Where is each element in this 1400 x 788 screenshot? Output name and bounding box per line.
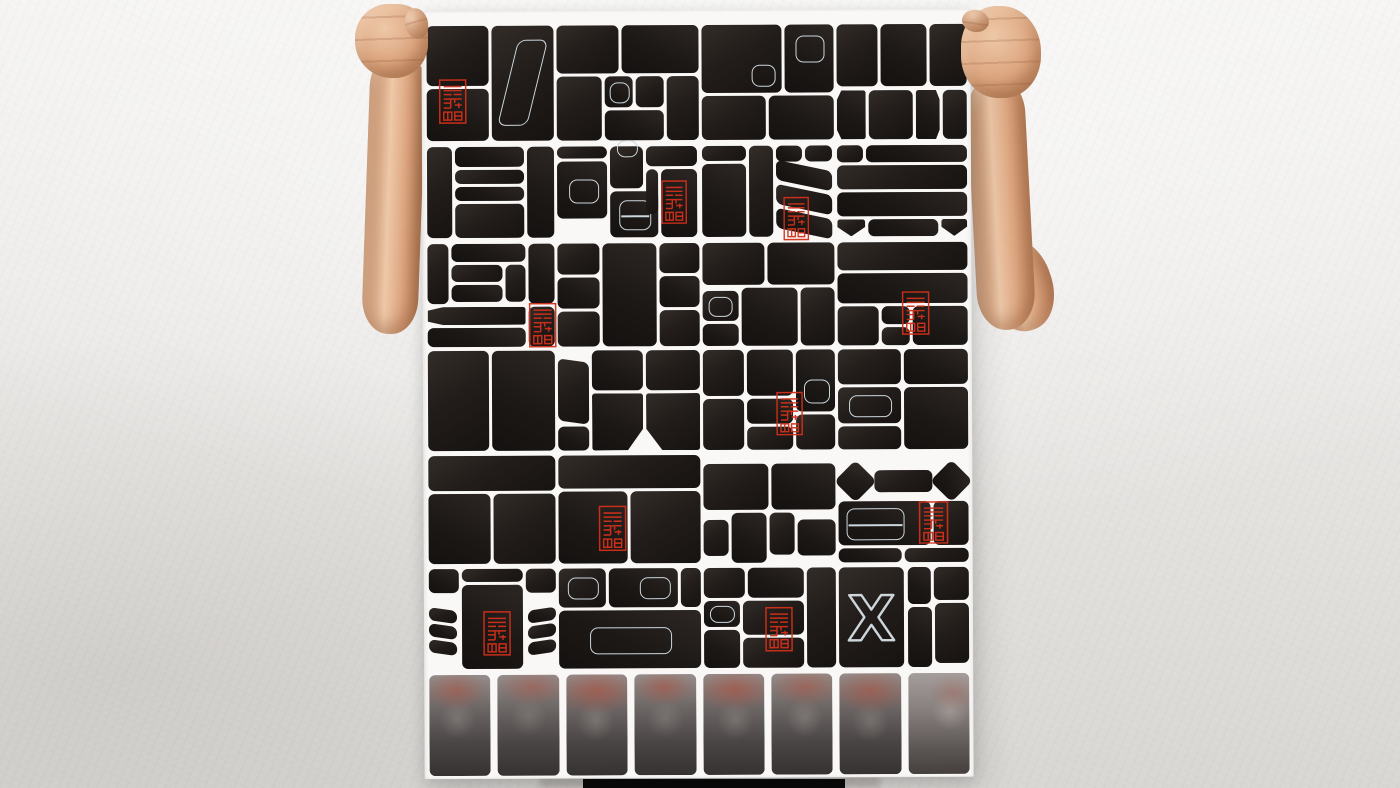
mosaic-tile (428, 351, 489, 451)
mosaic-tile (837, 90, 866, 139)
mosaic-tile (704, 520, 729, 556)
mosaic-tile (602, 243, 656, 346)
mosaic-tile (838, 426, 901, 449)
mosaic-tile (784, 24, 833, 92)
mosaic-tile (527, 147, 554, 238)
mosaic-tile (558, 311, 600, 346)
character-block (837, 145, 967, 237)
mosaic-tile (771, 463, 835, 509)
mosaic-tile (838, 349, 901, 384)
mosaic-tile (429, 569, 459, 593)
mosaic-tile (493, 494, 555, 564)
mosaic-tile (701, 25, 781, 93)
mosaic-tile (769, 95, 834, 139)
mosaic-tile (702, 96, 766, 140)
mosaic-tile (557, 146, 607, 158)
mosaic-tile (703, 324, 739, 346)
mosaic-tile (742, 288, 798, 346)
mosaic-tile (702, 243, 764, 285)
mosaic-tile (428, 307, 526, 325)
mosaic-tile (646, 350, 700, 390)
portrait-tile (908, 673, 970, 774)
character-block (558, 455, 700, 564)
mosaic-tile (837, 219, 865, 236)
character-block (427, 147, 554, 239)
character-block (702, 145, 834, 237)
mosaic-tile (681, 568, 701, 607)
mosaic-tile (429, 623, 457, 640)
mosaic-tile (866, 145, 967, 162)
mosaic-tile (935, 603, 969, 663)
mosaic-tile (930, 460, 972, 502)
mosaic-tile (558, 358, 589, 424)
mosaic-tile (455, 204, 524, 238)
tile-inner-outline (617, 140, 638, 157)
tile-inner-outline (795, 35, 824, 62)
mosaic-tile: X (839, 567, 904, 667)
mosaic-tile (904, 387, 968, 449)
character-block (428, 351, 555, 452)
mosaic-tile (451, 244, 525, 262)
mosaic-tile (426, 26, 488, 86)
mosaic-tile (807, 567, 836, 667)
mosaic-tile (703, 399, 744, 450)
portrait-tile (703, 674, 765, 775)
mosaic-tile (636, 76, 664, 107)
seal-stamp (598, 505, 626, 551)
portrait-tile (634, 674, 696, 775)
mosaic-tile (429, 639, 457, 656)
mosaic-tile (837, 242, 967, 271)
mosaic-tile (770, 513, 795, 555)
mosaic-tile (749, 146, 773, 237)
character-block (428, 456, 555, 565)
character-block (703, 349, 835, 450)
mosaic-tile (934, 567, 969, 600)
mosaic-tile (592, 350, 643, 390)
mosaic-tile (659, 243, 699, 273)
mosaic-tile (630, 491, 700, 563)
mosaic-tile (451, 265, 502, 282)
seal-stamp (765, 607, 793, 652)
character-block (836, 24, 967, 140)
portrait-tile (566, 674, 628, 775)
mosaic-tile (837, 145, 863, 162)
mosaic-tile (837, 192, 967, 217)
mosaic-tile (557, 161, 607, 218)
portrait-tile (839, 673, 901, 774)
mosaic-tile (491, 26, 554, 141)
character-block (702, 242, 834, 346)
mosaic-tile (874, 470, 932, 492)
mosaic-tile (605, 110, 664, 140)
mosaic-tile (605, 76, 633, 107)
outline-divider (849, 524, 903, 526)
character-block (558, 350, 700, 451)
mosaic-tile (704, 601, 740, 627)
mosaic-tile (660, 310, 700, 346)
mosaic-tile (610, 146, 643, 188)
portrait-tile (771, 673, 833, 774)
mosaic-tile (559, 568, 606, 607)
mosaic-tile (428, 456, 555, 492)
mosaic-tile (943, 90, 967, 139)
mosaic-tile (455, 147, 524, 167)
character-block (703, 454, 835, 563)
mosaic-tile (462, 569, 523, 582)
mosaic-tile (703, 464, 768, 510)
x-glyph: X (839, 567, 904, 667)
character-block (557, 243, 699, 347)
tile-inner-outline (640, 577, 671, 599)
mosaic-tile (834, 460, 876, 502)
mosaic-tile (528, 639, 556, 656)
mosaic-tile (839, 548, 902, 562)
mosaic-tile (646, 169, 658, 214)
mosaic-tile (702, 164, 746, 237)
mosaic-tile (528, 244, 554, 304)
mosaic-tile (455, 170, 524, 184)
mosaic-tile (526, 569, 556, 593)
mosaic-tile (558, 455, 700, 489)
tile-inner-outline (849, 395, 892, 417)
mosaic-tile (667, 76, 699, 140)
mosaic-tile (427, 244, 448, 304)
mosaic-tile (492, 351, 555, 451)
tile-inner-outline (590, 627, 672, 654)
mosaic-tile (836, 24, 877, 86)
mosaic-tile (908, 567, 931, 604)
mosaic-tile (621, 25, 698, 73)
mosaic-tile (557, 277, 599, 308)
mosaic-tile (838, 306, 879, 345)
mosaic-tile (838, 501, 930, 545)
mosaic-tile (908, 607, 932, 667)
seal-stamp (439, 79, 467, 124)
mosaic-tile (703, 350, 744, 396)
seal-stamp (783, 197, 809, 241)
mosaic-tile (801, 287, 835, 345)
mosaic-tile (455, 187, 524, 201)
mosaic-tile (748, 568, 804, 598)
mosaic-tile (428, 494, 490, 564)
mosaic-tile (704, 568, 745, 598)
svg-text:X: X (847, 582, 895, 655)
character-block (701, 24, 834, 140)
mosaic-tile (880, 24, 926, 86)
portrait-tile (498, 675, 560, 776)
photo-scene: X (0, 0, 1400, 788)
tile-inner-outline (710, 606, 735, 623)
outline-divider (621, 215, 649, 217)
mosaic-tile (767, 242, 834, 284)
seal-stamp (529, 303, 557, 348)
character-block (838, 454, 968, 563)
mosaic-tile (941, 219, 967, 236)
tile-inner-outline (709, 297, 733, 317)
mosaic-tile (916, 90, 940, 139)
mosaic-tile (805, 145, 832, 161)
mosaic-tile (559, 610, 701, 669)
character-block (838, 349, 968, 450)
tile-inner-outline (610, 82, 630, 103)
mosaic-tile (528, 623, 556, 640)
tile-inner-outline (568, 577, 599, 599)
mosaic-tile (505, 265, 525, 302)
mosaic-tile (428, 328, 526, 347)
mosaic-tile (868, 219, 938, 236)
seal-stamp (661, 180, 687, 224)
tile-inner-outline (569, 179, 599, 203)
mosaic-tile (837, 165, 967, 190)
portrait-tile (429, 675, 491, 776)
poster: X (421, 9, 973, 779)
mosaic-tile (556, 25, 618, 73)
mosaic-tile (427, 147, 452, 238)
mosaic-tile (557, 76, 602, 140)
mosaic-tile (704, 630, 740, 668)
mosaic-tile (776, 146, 802, 162)
mosaic-tile (703, 291, 739, 321)
seal-stamp (918, 501, 948, 544)
stand-bar (583, 779, 845, 788)
mosaic-tile (869, 90, 913, 139)
mosaic-tile (452, 285, 503, 302)
mosaic-tile (798, 519, 836, 555)
mosaic-tile (646, 146, 697, 166)
character-block (559, 568, 701, 669)
tile-inner-outline (497, 40, 548, 126)
seal-stamp (776, 392, 803, 436)
tile-inner-outline (752, 65, 776, 87)
mosaic-tile (528, 607, 556, 624)
mosaic-tile (646, 393, 700, 450)
mosaic-tile (747, 350, 793, 396)
mosaic-tile (429, 607, 457, 624)
mosaic-tile (659, 276, 699, 307)
mosaic-tile (558, 426, 589, 450)
mosaic-tile (838, 387, 901, 423)
tile-inner-outline (804, 379, 830, 403)
tile-inner-outline (847, 508, 905, 540)
seal-stamp (902, 291, 930, 335)
mosaic-tile (904, 349, 968, 384)
character-block: X (839, 567, 969, 668)
seal-stamp (483, 611, 511, 656)
mosaic-tile (592, 393, 643, 450)
mosaic-tile (557, 243, 599, 274)
left-forearm (361, 51, 427, 335)
mosaic-tile (702, 146, 746, 161)
character-block (556, 25, 699, 141)
mosaic-tile (905, 548, 969, 562)
mosaic-tile (732, 513, 767, 563)
mosaic-tile (609, 568, 678, 607)
